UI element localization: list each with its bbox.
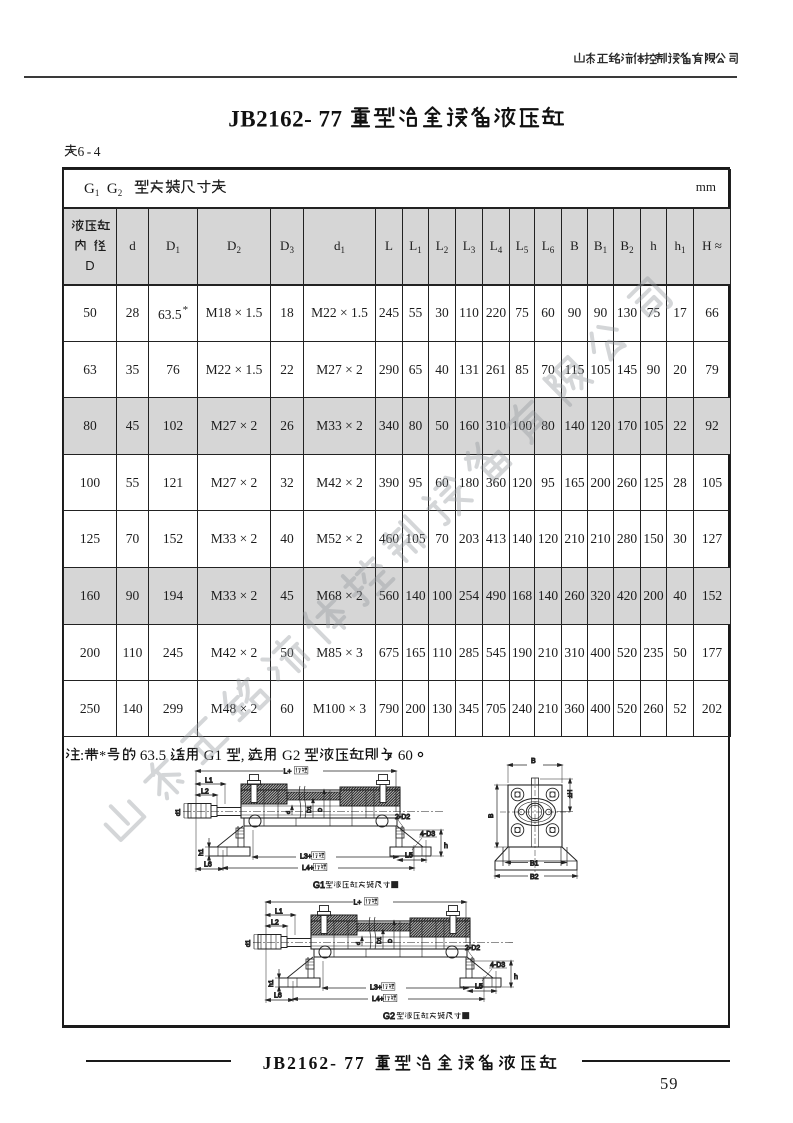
svg-text:L5: L5	[405, 853, 413, 860]
svg-text:L6: L6	[274, 993, 282, 1000]
svg-text:L+: L+	[284, 769, 292, 776]
svg-text:L3+: L3+	[300, 854, 312, 861]
svg-text:D1: D1	[307, 806, 313, 813]
svg-text:d: d	[286, 811, 292, 814]
svg-text:L+: L+	[354, 900, 362, 907]
svg-text:L4+: L4+	[372, 996, 384, 1003]
svg-text:L3+: L3+	[370, 985, 382, 992]
svg-text:G2: G2	[383, 1011, 395, 1021]
svg-text:2-D2: 2-D2	[465, 945, 480, 952]
svg-text:B: B	[531, 758, 536, 765]
svg-text:L2: L2	[201, 789, 209, 796]
svg-text:±H: ±H	[567, 789, 574, 798]
svg-text:L5: L5	[475, 984, 483, 991]
svg-text:G1: G1	[313, 880, 325, 890]
svg-text:L6: L6	[204, 862, 212, 869]
svg-text:B2: B2	[530, 874, 539, 881]
svg-text:d1: d1	[245, 939, 252, 947]
svg-text:d: d	[356, 942, 362, 945]
svg-text:h: h	[444, 843, 448, 850]
svg-text:B: B	[488, 814, 495, 818]
svg-text:D: D	[388, 939, 394, 943]
svg-text:2-D2: 2-D2	[395, 814, 410, 821]
svg-text:L1: L1	[275, 909, 283, 916]
svg-text:L4+: L4+	[302, 865, 314, 872]
svg-text:h1: h1	[198, 848, 205, 856]
svg-text:L2: L2	[271, 920, 279, 927]
svg-text:B1: B1	[530, 861, 539, 868]
svg-text:h: h	[514, 974, 518, 981]
svg-text:D: D	[318, 808, 324, 812]
svg-text:D1: D1	[377, 937, 383, 944]
svg-text:h1: h1	[268, 979, 275, 987]
